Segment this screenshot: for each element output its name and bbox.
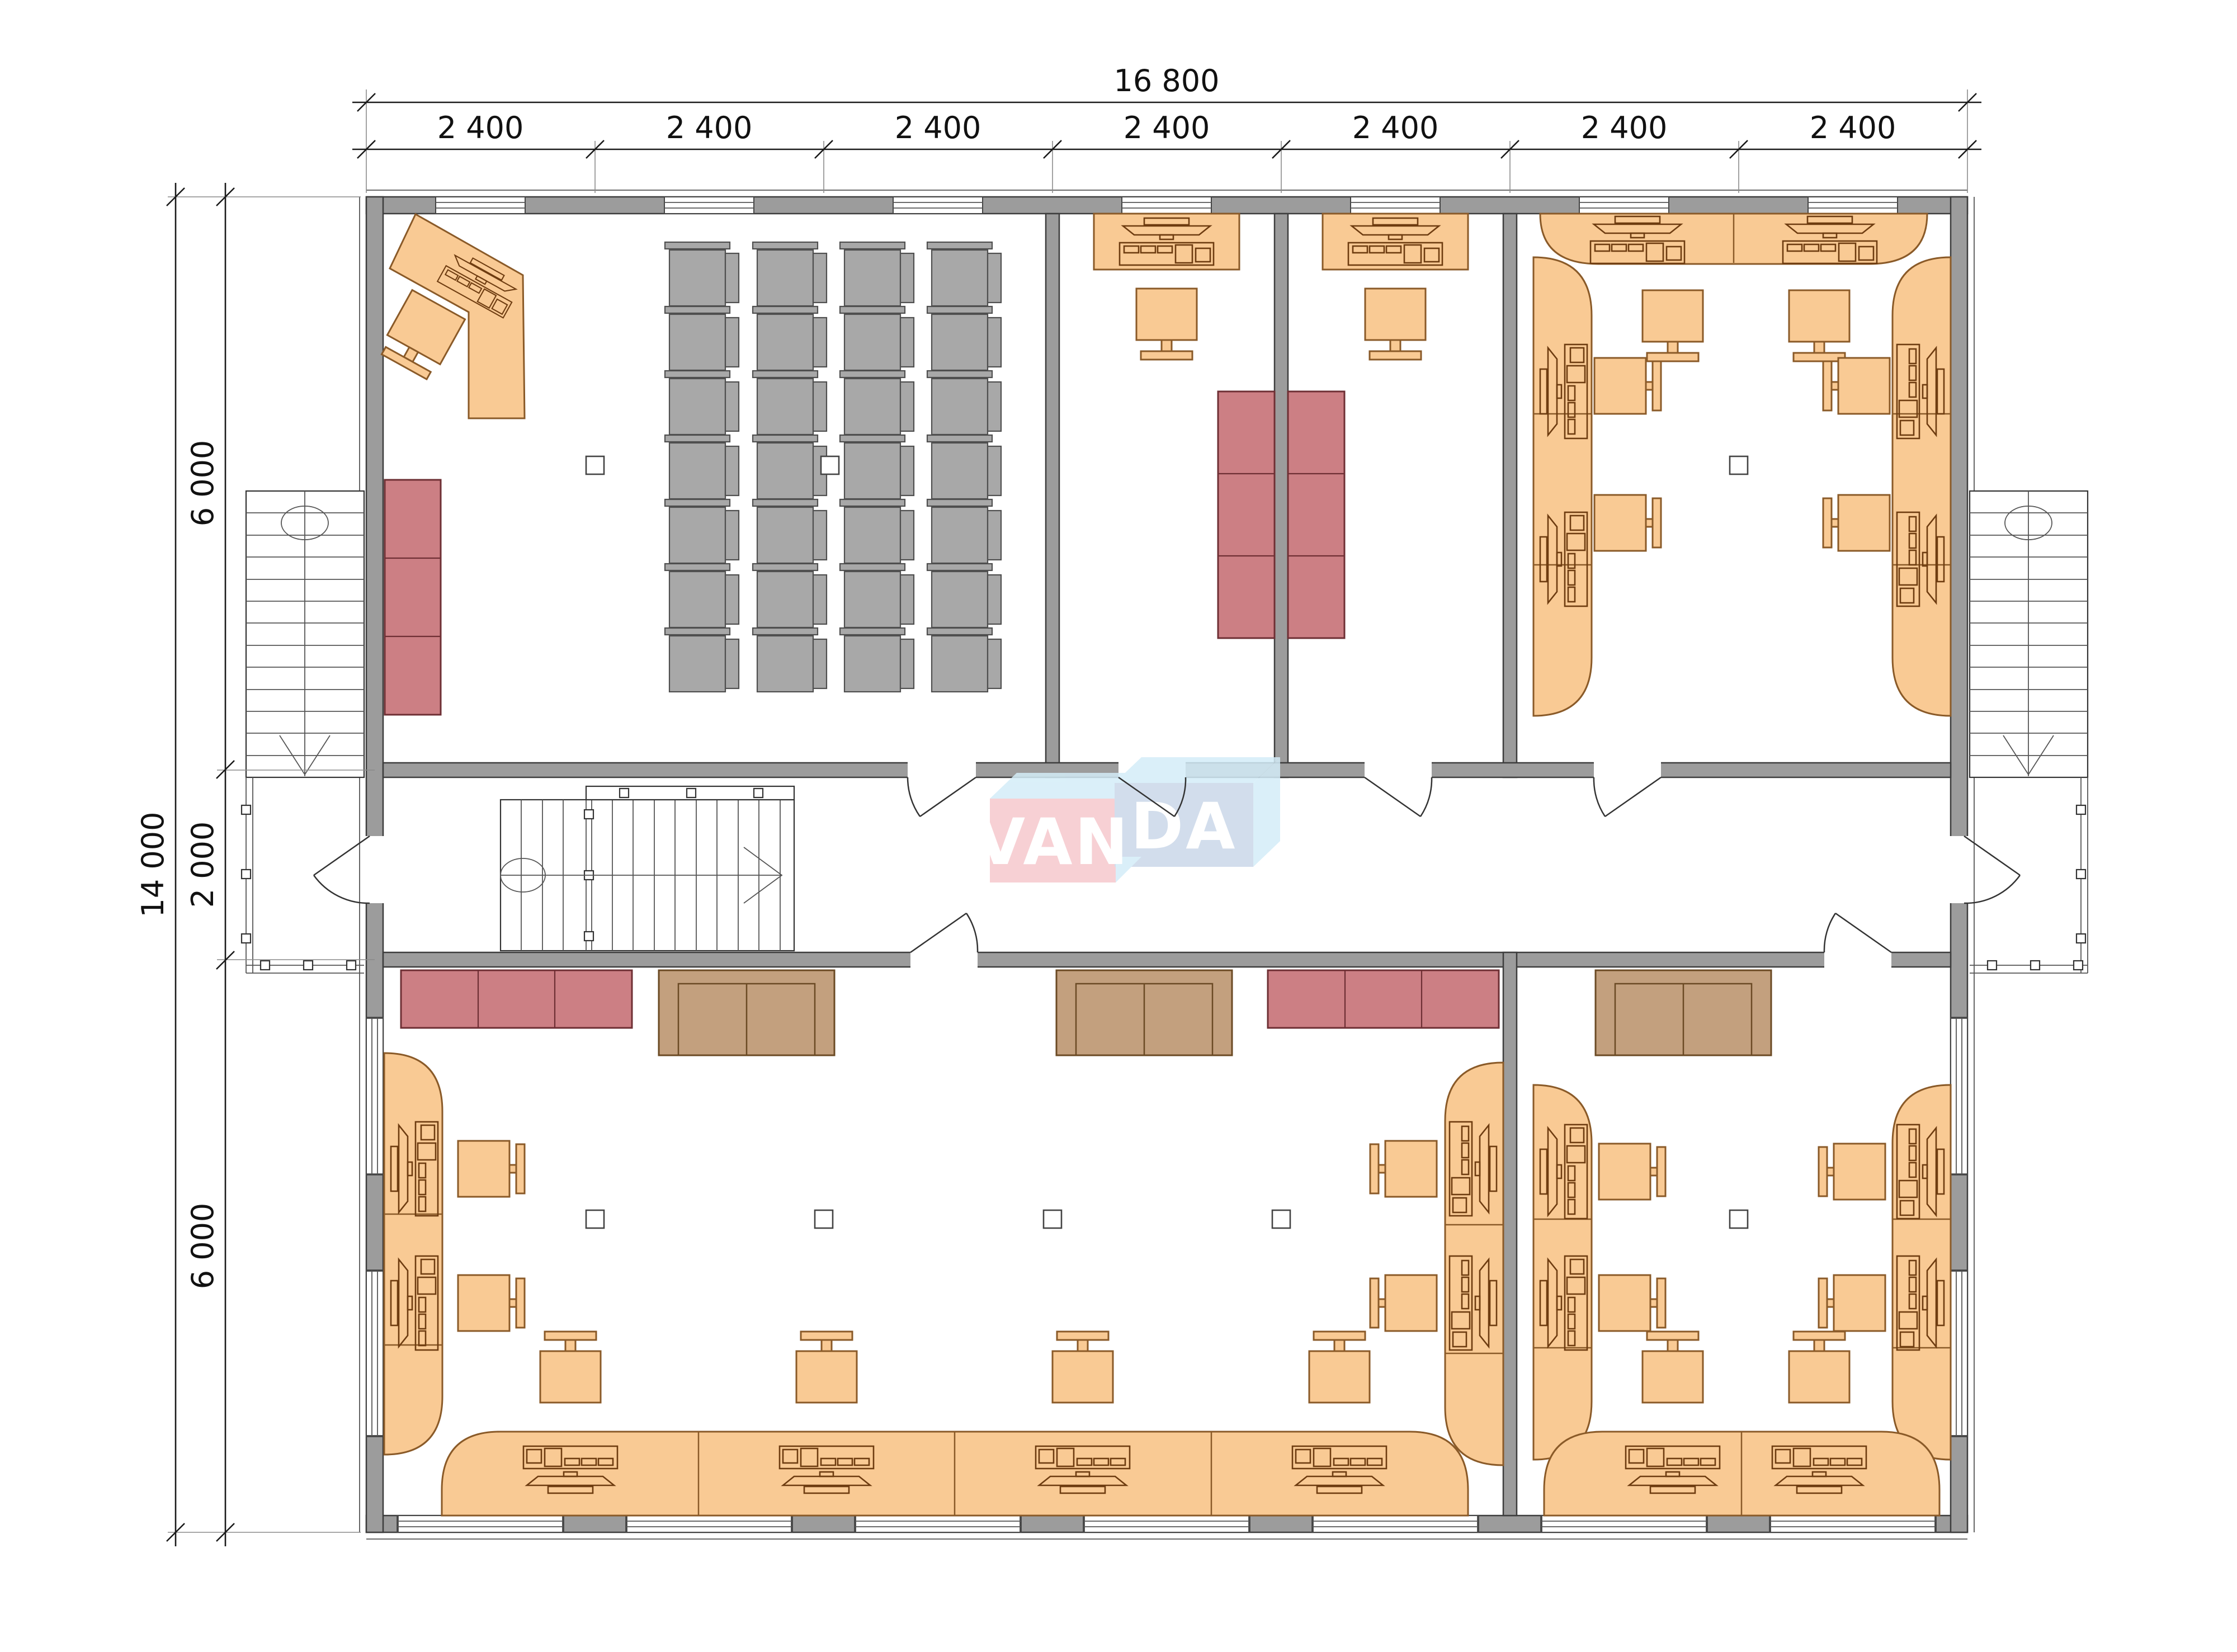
sofa	[659, 970, 834, 1055]
window	[1084, 1516, 1249, 1532]
door-swing	[910, 913, 978, 952]
cabinet-red	[401, 970, 632, 1028]
room-top-left	[378, 214, 1001, 715]
dim-label: 2 400	[1352, 110, 1439, 145]
window	[1351, 197, 1440, 214]
column-marker	[1044, 1210, 1061, 1228]
window	[1579, 197, 1669, 214]
office-chair	[458, 1141, 525, 1197]
office-chair	[540, 1332, 601, 1403]
window	[855, 1516, 1021, 1532]
office-chair	[1819, 1275, 1885, 1331]
office-chair	[1599, 1275, 1665, 1331]
desk	[1094, 214, 1239, 270]
partition-bottom	[1503, 952, 1517, 1516]
dimension-top-bays: 2 400 2 400 2 400 2 400 2 400 2 400 2 40…	[352, 110, 1981, 158]
partition-top-3	[1503, 214, 1517, 777]
dim-label: 6 000	[185, 440, 220, 527]
desk-run-left	[1533, 257, 1592, 716]
dim-label: 2 000	[185, 822, 220, 908]
dim-label: 2 400	[1124, 110, 1210, 145]
stairs-exterior-left	[242, 491, 364, 973]
office-chair	[1309, 1332, 1370, 1403]
vanda-logo: VAN DA	[976, 757, 1280, 882]
door-swing	[908, 777, 976, 816]
door-swing	[1365, 777, 1432, 816]
dim-label: 2 400	[1581, 110, 1668, 145]
logo-text-right: DA	[1131, 789, 1238, 863]
logo-text-left: VAN	[976, 805, 1130, 879]
window	[1951, 1018, 1967, 1174]
column-marker	[1730, 1210, 1748, 1228]
floor-plan-drawing: VAN DA 16 800	[0, 0, 2237, 1652]
office-chair	[1594, 495, 1661, 551]
office-chair	[1643, 290, 1703, 361]
office-chair	[1370, 1275, 1437, 1331]
window	[1770, 1516, 1936, 1532]
dimension-left-total: 14 000	[135, 183, 185, 1546]
partition-top-2	[1275, 214, 1288, 777]
room-bottom-left	[384, 970, 1503, 1516]
desk	[1323, 214, 1468, 270]
office-chair	[458, 1275, 525, 1331]
window	[1808, 197, 1898, 214]
column-marker	[821, 456, 839, 474]
office-chair	[1823, 358, 1890, 414]
logo-lid-right	[1115, 757, 1280, 783]
office-chair	[1789, 290, 1849, 361]
stairs-interior-corridor	[501, 786, 794, 951]
window	[626, 1516, 792, 1532]
office-chair	[1136, 289, 1197, 360]
porch-left	[242, 777, 364, 973]
column-marker	[586, 1210, 604, 1228]
office-chair	[1643, 1332, 1703, 1403]
office-chair	[1370, 1141, 1437, 1197]
floor-plan-page: VAN DA 16 800	[0, 0, 2237, 1652]
window	[1541, 1516, 1707, 1532]
cabinet-red	[385, 480, 441, 715]
window	[436, 197, 525, 214]
window	[893, 197, 983, 214]
office-chair	[1053, 1332, 1113, 1403]
corridor-wall-bottom	[383, 952, 1951, 967]
cabinet-red	[1268, 970, 1499, 1028]
door-swing	[314, 836, 370, 903]
column-marker	[1730, 456, 1748, 474]
partition-top-1	[1046, 214, 1059, 777]
dim-label: 2 400	[895, 110, 981, 145]
office-chair	[1789, 1332, 1849, 1403]
office-chair	[1819, 1144, 1885, 1200]
window	[366, 1018, 383, 1174]
dim-label: 2 400	[437, 110, 524, 145]
window	[398, 1516, 563, 1532]
porch-right	[1970, 777, 2088, 973]
dimension-left-bands: 6 000 2 000 6 000	[185, 183, 234, 1546]
window	[366, 1271, 383, 1436]
room-top-middle-b	[1323, 214, 1468, 360]
window	[664, 197, 754, 214]
column-marker	[586, 456, 604, 474]
stairs-exterior-right	[1970, 491, 2088, 973]
dim-label: 6 000	[185, 1203, 220, 1290]
window	[1313, 1516, 1478, 1532]
sofa	[1596, 970, 1771, 1055]
door-swing	[1824, 913, 1891, 952]
desk-run-left	[384, 1053, 442, 1455]
desk-run-left	[1533, 1085, 1592, 1460]
dim-label: 2 400	[1810, 110, 1896, 145]
door-swing	[1594, 777, 1661, 816]
window	[1951, 1271, 1967, 1436]
room-bottom-right	[1533, 970, 1951, 1516]
office-chair	[796, 1332, 857, 1403]
office-chair	[1365, 289, 1426, 360]
office-chair	[1599, 1144, 1665, 1200]
room-top-right	[1533, 214, 1951, 716]
window	[1122, 197, 1211, 214]
office-chair	[1594, 358, 1661, 414]
office-chair	[1823, 495, 1890, 551]
desk-run-right	[1445, 1063, 1503, 1465]
dim-label: 2 400	[666, 110, 753, 145]
dim-label: 14 000	[135, 812, 171, 918]
column-marker	[815, 1210, 833, 1228]
desk-run-right	[1893, 257, 1951, 716]
dim-label: 16 800	[1114, 63, 1220, 98]
desk-run-right	[1893, 1085, 1951, 1460]
door-swing	[1964, 836, 2020, 903]
dimension-top-total: 16 800	[352, 63, 1981, 111]
column-marker	[1272, 1210, 1290, 1228]
sofa	[1056, 970, 1232, 1055]
room-top-middle-a	[1094, 214, 1239, 360]
